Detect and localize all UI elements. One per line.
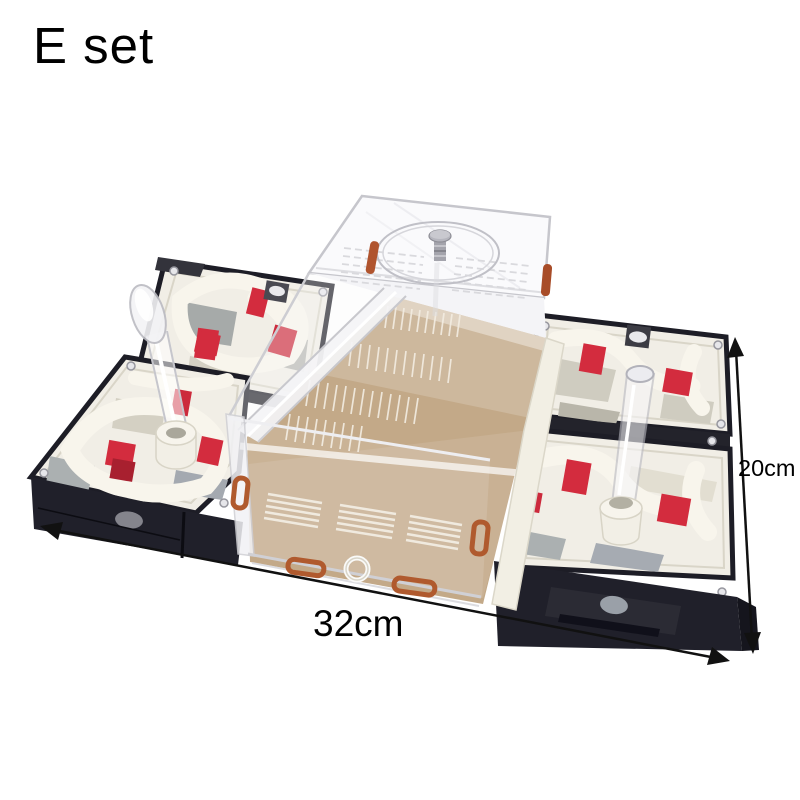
svg-text:20cm: 20cm bbox=[738, 455, 795, 481]
svg-text:32cm: 32cm bbox=[313, 603, 403, 644]
